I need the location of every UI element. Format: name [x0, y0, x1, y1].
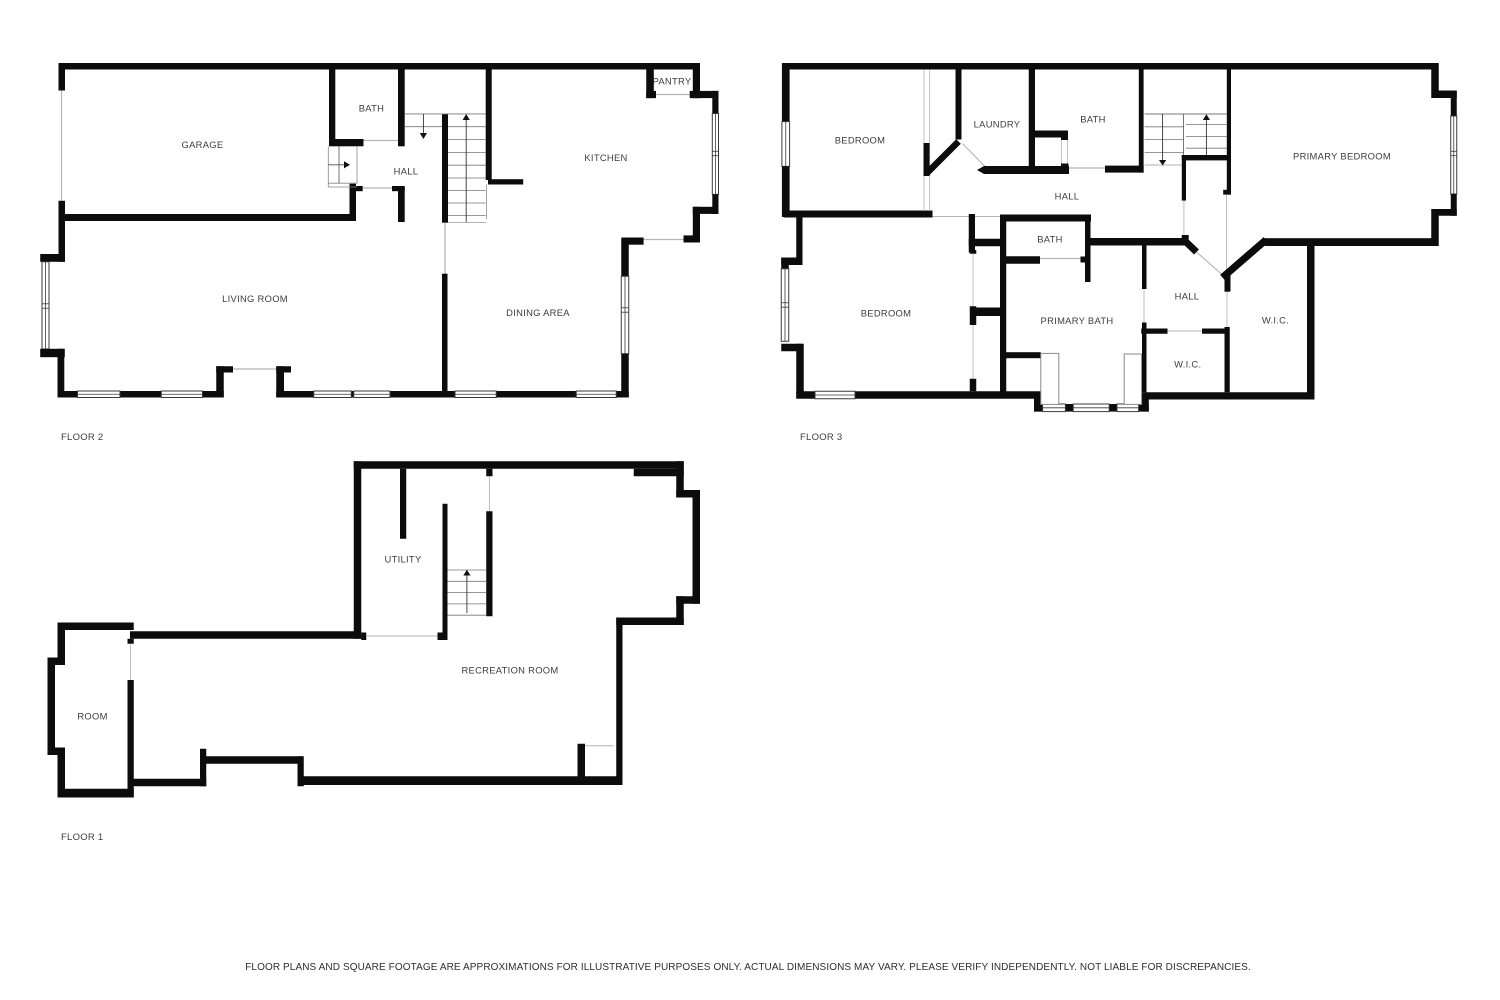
svg-text:PRIMARY BEDROOM: PRIMARY BEDROOM: [1293, 151, 1391, 162]
svg-text:BATH: BATH: [1037, 234, 1063, 245]
svg-text:RECREATION ROOM: RECREATION ROOM: [461, 665, 558, 676]
svg-text:BEDROOM: BEDROOM: [861, 308, 912, 319]
svg-text:FLOOR 3: FLOOR 3: [800, 432, 842, 443]
svg-text:BATH: BATH: [359, 103, 385, 114]
svg-text:W.I.C.: W.I.C.: [1174, 359, 1201, 370]
svg-text:GARAGE: GARAGE: [182, 139, 224, 150]
svg-text:FLOOR 1: FLOOR 1: [61, 832, 103, 843]
svg-text:FLOOR 2: FLOOR 2: [61, 432, 103, 443]
svg-text:PANTRY: PANTRY: [653, 76, 692, 87]
svg-text:W.I.C.: W.I.C.: [1262, 315, 1289, 326]
svg-text:ROOM: ROOM: [77, 711, 107, 722]
svg-text:LAUNDRY: LAUNDRY: [974, 119, 1021, 130]
svg-text:HALL: HALL: [394, 166, 419, 177]
svg-text:KITCHEN: KITCHEN: [584, 152, 627, 163]
svg-text:HALL: HALL: [1175, 291, 1200, 302]
svg-text:DINING AREA: DINING AREA: [506, 307, 570, 318]
svg-text:BEDROOM: BEDROOM: [835, 135, 886, 146]
svg-text:FLOOR PLANS AND SQUARE FOOTAGE: FLOOR PLANS AND SQUARE FOOTAGE ARE APPRO…: [245, 962, 1251, 973]
svg-text:LIVING ROOM: LIVING ROOM: [222, 293, 288, 304]
svg-text:HALL: HALL: [1055, 191, 1080, 202]
svg-text:BATH: BATH: [1080, 114, 1106, 125]
svg-text:UTILITY: UTILITY: [385, 554, 422, 565]
svg-text:PRIMARY BATH: PRIMARY BATH: [1041, 315, 1114, 326]
